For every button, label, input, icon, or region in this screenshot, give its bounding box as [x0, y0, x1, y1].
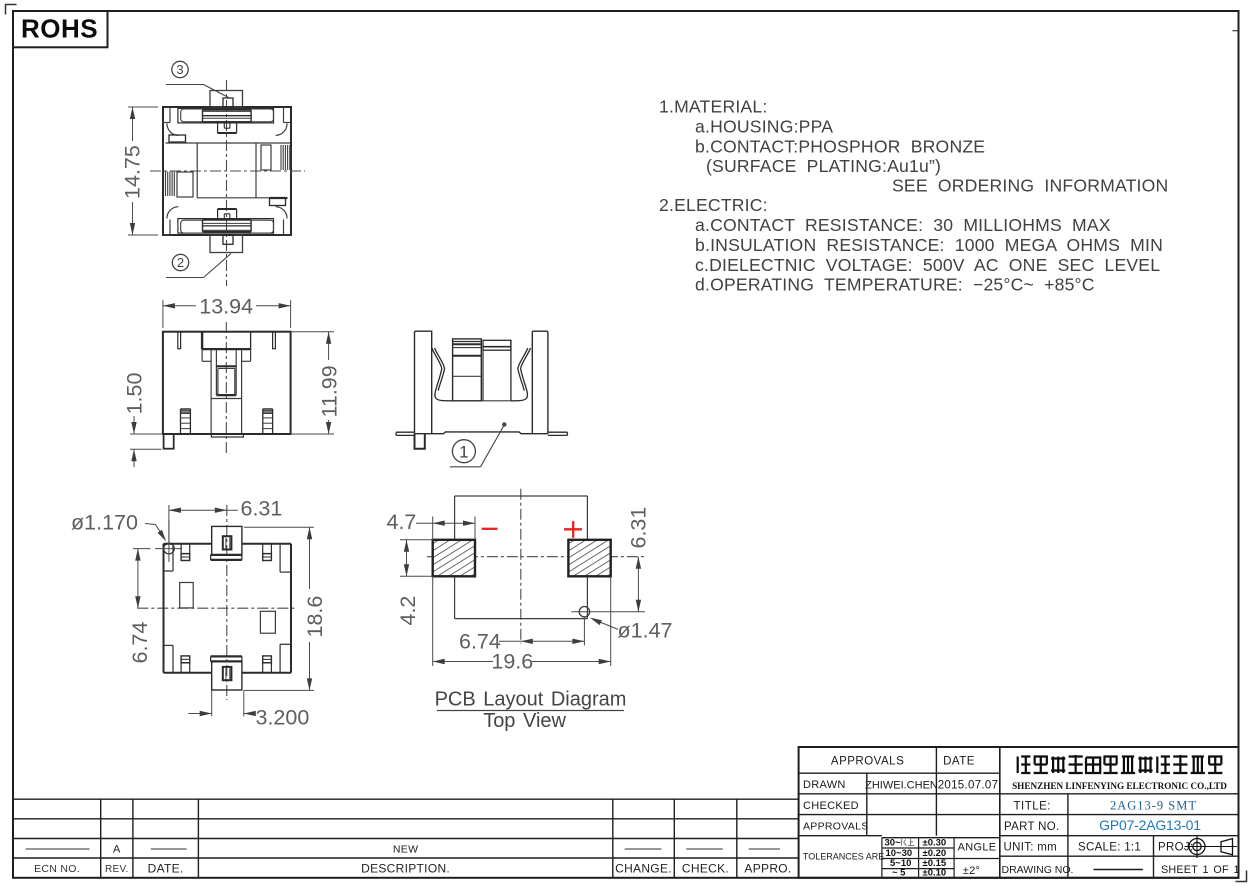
svg-text:3.200: 3.200: [256, 706, 310, 730]
svg-text:PCB Layout Diagram: PCB Layout Diagram: [435, 689, 627, 711]
svg-text:ZHIWEI.CHEN: ZHIWEI.CHEN: [865, 779, 938, 791]
svg-text:19.6: 19.6: [491, 650, 533, 674]
svg-text:DATE: DATE: [943, 756, 975, 768]
svg-text:1: 1: [459, 443, 468, 462]
svg-text:3: 3: [176, 62, 183, 77]
svg-text:ROHS: ROHS: [21, 14, 98, 44]
svg-text:14.75: 14.75: [121, 145, 145, 199]
svg-text:18.6: 18.6: [303, 596, 327, 638]
svg-text:11.99: 11.99: [317, 365, 341, 417]
svg-text:1.MATERIAL:: 1.MATERIAL:: [659, 97, 767, 117]
svg-text:ANGLE: ANGLE: [958, 841, 997, 853]
svg-text:DATE.: DATE.: [148, 861, 184, 875]
svg-text:b.INSULATION RESISTANCE: 100: b.INSULATION RESISTANCE: 1000 MEGA OHMS …: [695, 235, 1163, 255]
svg-text:2.ELECTRIC:: 2.ELECTRIC:: [659, 195, 768, 215]
svg-text:13.94: 13.94: [199, 294, 253, 318]
svg-text:c.DIELECTNIC VOLTAGE: 500V: c.DIELECTNIC VOLTAGE: 500V AC ONE SEC LE…: [695, 255, 1160, 275]
svg-text:APPROVALS: APPROVALS: [803, 821, 869, 833]
svg-text:1.50: 1.50: [123, 373, 147, 415]
svg-text:6.31: 6.31: [627, 507, 651, 549]
svg-text:2AG13-9 SMT: 2AG13-9 SMT: [1110, 798, 1197, 812]
svg-text:DRAWN: DRAWN: [803, 779, 846, 791]
svg-text:4.2: 4.2: [396, 596, 420, 626]
svg-text:UNIT: mm: UNIT: mm: [1004, 841, 1058, 853]
svg-text:A: A: [113, 843, 121, 855]
svg-text:~ 5: ~ 5: [892, 868, 906, 879]
svg-text:DESCRIPTION.: DESCRIPTION.: [361, 861, 450, 875]
svg-text:a.CONTACT RESISTANCE: 30 MI: a.CONTACT RESISTANCE: 30 MILLIOHMS MAX: [695, 215, 1111, 235]
svg-text:ECN NO.: ECN NO.: [34, 863, 80, 875]
svg-text:a.HOUSING:PPA: a.HOUSING:PPA: [695, 117, 833, 137]
svg-text:d.OPERATING TEMPERATURE: −25: d.OPERATING TEMPERATURE: −25°C~ +85°C: [695, 275, 1095, 295]
svg-text:Top View: Top View: [483, 710, 566, 732]
svg-text:±0.30: ±0.30: [923, 838, 947, 849]
svg-text:GP07-2AG13-01: GP07-2AG13-01: [1099, 817, 1201, 833]
svg-text:DRAWING NO.: DRAWING NO.: [1002, 864, 1074, 876]
svg-text:TITLE:: TITLE:: [1014, 801, 1052, 813]
svg-text:SHEET 1 OF 1: SHEET 1 OF 1: [1161, 864, 1240, 876]
svg-text:CHECK.: CHECK.: [682, 861, 729, 875]
svg-text:APPRO.: APPRO.: [744, 861, 791, 875]
svg-text:CHECKED: CHECKED: [803, 800, 859, 812]
svg-text:6.31: 6.31: [241, 497, 283, 521]
svg-text:SHENZHEN LINFENYING ELECTRONIC: SHENZHEN LINFENYING ELECTRONIC CO.,LTD: [1012, 781, 1227, 791]
svg-text:4.7: 4.7: [387, 510, 417, 534]
svg-text:REV.: REV.: [105, 864, 129, 875]
svg-text:SCALE: 1:1: SCALE: 1:1: [1078, 841, 1141, 853]
svg-text:30~: 30~: [885, 838, 902, 849]
svg-text:SEE ORDERING INFORMATION: SEE ORDERING INFORMATION: [892, 176, 1168, 196]
svg-text:6.74: 6.74: [128, 622, 152, 664]
svg-text:NEW: NEW: [393, 843, 418, 855]
svg-text:PROJ:: PROJ:: [1158, 841, 1193, 853]
svg-text:TOLERANCES ARE: TOLERANCES ARE: [803, 851, 884, 861]
svg-text:PART NO.: PART NO.: [1004, 821, 1059, 833]
svg-text:±0.10: ±0.10: [923, 868, 947, 879]
svg-text:2015.07.07: 2015.07.07: [938, 779, 999, 791]
svg-text:ø1.170: ø1.170: [71, 511, 138, 535]
svg-text:APPROVALS: APPROVALS: [831, 756, 904, 768]
svg-text:±2°: ±2°: [963, 865, 980, 877]
svg-text:(SURFACE PLATING:Au1u”): (SURFACE PLATING:Au1u”): [706, 156, 941, 176]
svg-text:ø1.47: ø1.47: [618, 619, 673, 643]
svg-text:CHANGE.: CHANGE.: [615, 861, 672, 875]
svg-text:2: 2: [177, 255, 184, 270]
svg-text:b.CONTACT:PHOSPHOR BRONZE: b.CONTACT:PHOSPHOR BRONZE: [695, 137, 985, 157]
